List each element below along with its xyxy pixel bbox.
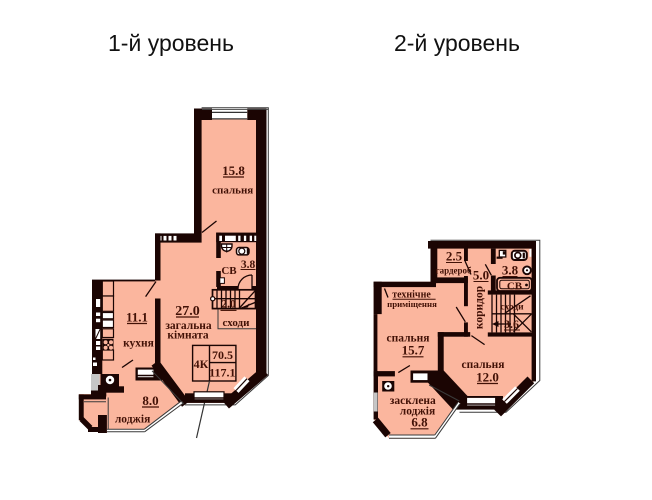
svg-text:2.0: 2.0 <box>221 299 236 311</box>
svg-text:СВ: СВ <box>507 281 523 293</box>
svg-text:коридор: коридор <box>474 286 486 329</box>
svg-text:кімната: кімната <box>167 330 209 342</box>
svg-text:2-й уровень: 2-й уровень <box>394 30 520 56</box>
svg-text:12.0: 12.0 <box>476 370 499 385</box>
svg-text:117.1: 117.1 <box>209 366 235 380</box>
svg-text:2.5: 2.5 <box>446 249 463 264</box>
svg-text:3.8: 3.8 <box>502 263 519 278</box>
svg-text:гардероб: гардероб <box>435 266 472 276</box>
svg-text:сходи: сходи <box>223 317 251 329</box>
svg-text:6.8: 6.8 <box>411 415 428 430</box>
svg-text:лоджія: лоджія <box>115 414 150 426</box>
svg-text:15.7: 15.7 <box>402 343 425 358</box>
svg-text:11.1: 11.1 <box>126 310 148 325</box>
svg-text:15.8: 15.8 <box>222 163 245 178</box>
svg-text:сходи: сходи <box>500 303 524 313</box>
svg-text:3.6: 3.6 <box>504 317 519 331</box>
svg-text:кухня: кухня <box>123 338 154 350</box>
svg-text:5.0: 5.0 <box>473 268 489 283</box>
svg-text:1-й уровень: 1-й уровень <box>108 30 234 56</box>
svg-text:4К: 4К <box>194 357 209 371</box>
svg-text:спальня: спальня <box>212 185 253 197</box>
svg-text:70.5: 70.5 <box>212 348 233 362</box>
svg-text:приміщення: приміщення <box>387 299 437 309</box>
svg-text:СВ: СВ <box>221 265 237 277</box>
svg-text:8.0: 8.0 <box>142 393 158 408</box>
